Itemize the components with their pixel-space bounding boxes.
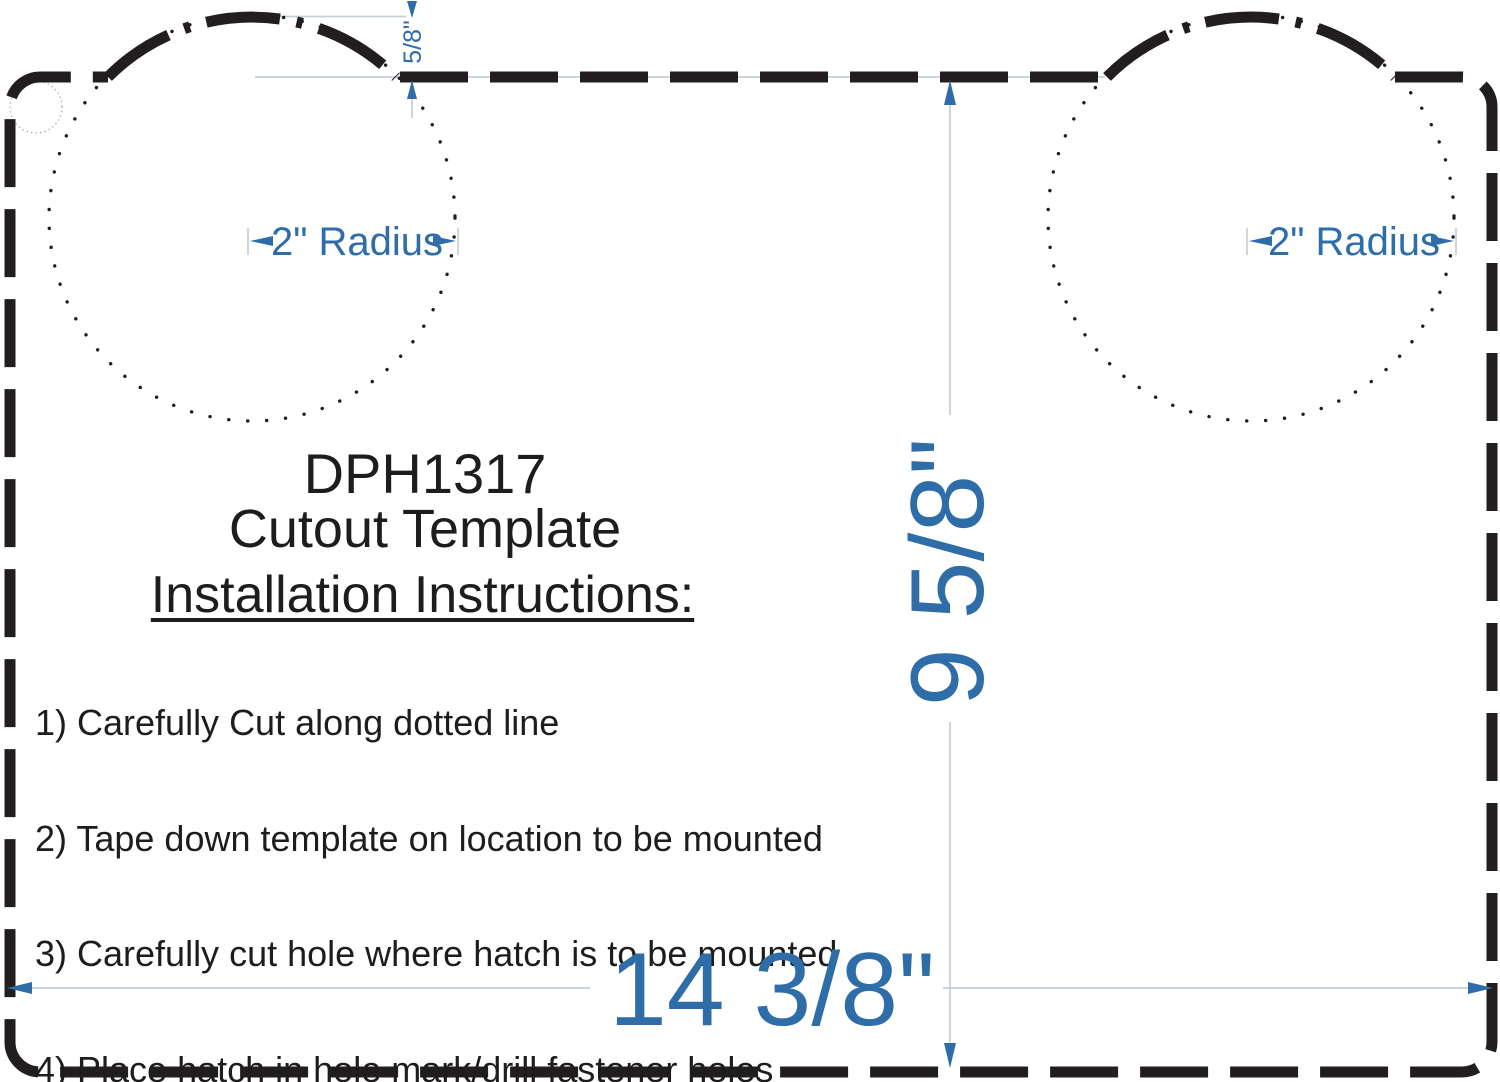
height-dim-arrow-down xyxy=(944,1043,956,1068)
instructions-heading: Installation Instructions: xyxy=(0,566,845,624)
overall-width-label: 14 3/8" xyxy=(422,938,1122,1042)
instruction-line: 4) Place hatch in hole mark/drill fasten… xyxy=(35,1051,838,1082)
left-radius-label: 2" Radius xyxy=(262,221,452,263)
right-radius-label: 2" Radius xyxy=(1259,221,1449,263)
instruction-line: 1) Carefully Cut along dotted line xyxy=(35,704,838,743)
instruction-line: 2) Tape down template on location to be … xyxy=(35,820,838,859)
template-subtitle: Cutout Template xyxy=(0,500,850,558)
bulge-height-label: 5/8" xyxy=(400,0,426,102)
cutout-template-page: 2" Radius 2" Radius 5/8" DPH1317 Cutout … xyxy=(0,0,1500,1082)
template-outline-bulge-arcs xyxy=(108,17,1395,77)
height-dim-arrow-up xyxy=(944,80,956,105)
cut-circles xyxy=(49,15,1454,421)
model-title: DPH1317 xyxy=(0,444,850,504)
overall-height-label: 9 5/8" xyxy=(896,422,1000,722)
